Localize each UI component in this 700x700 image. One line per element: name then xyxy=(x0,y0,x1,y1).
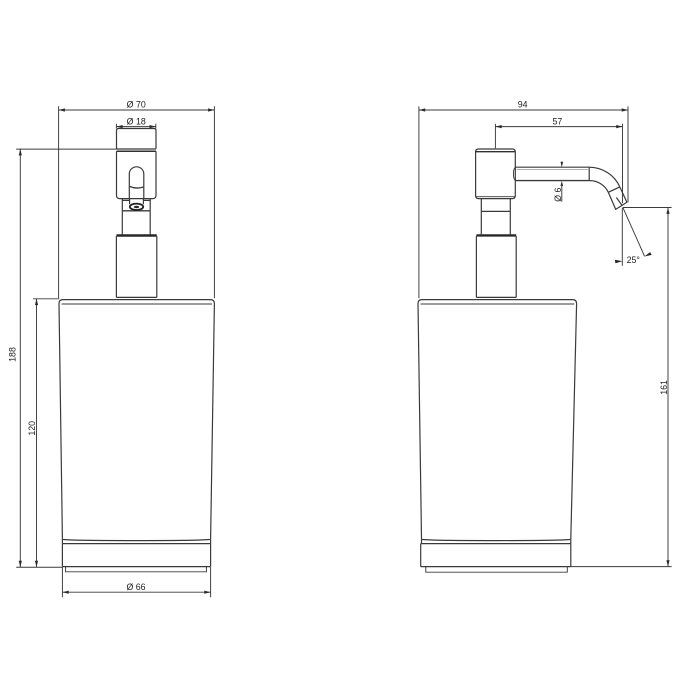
svg-text:57: 57 xyxy=(553,116,563,126)
svg-text:188: 188 xyxy=(8,347,18,362)
svg-text:Ø 66: Ø 66 xyxy=(126,582,145,592)
svg-text:Ø 70: Ø 70 xyxy=(127,100,146,110)
svg-text:120: 120 xyxy=(27,421,37,436)
svg-text:Ø 6: Ø 6 xyxy=(553,188,563,202)
svg-text:94: 94 xyxy=(518,100,528,110)
svg-text:25°: 25° xyxy=(627,255,640,265)
svg-text:161: 161 xyxy=(659,380,669,395)
svg-text:Ø 18: Ø 18 xyxy=(127,116,146,126)
